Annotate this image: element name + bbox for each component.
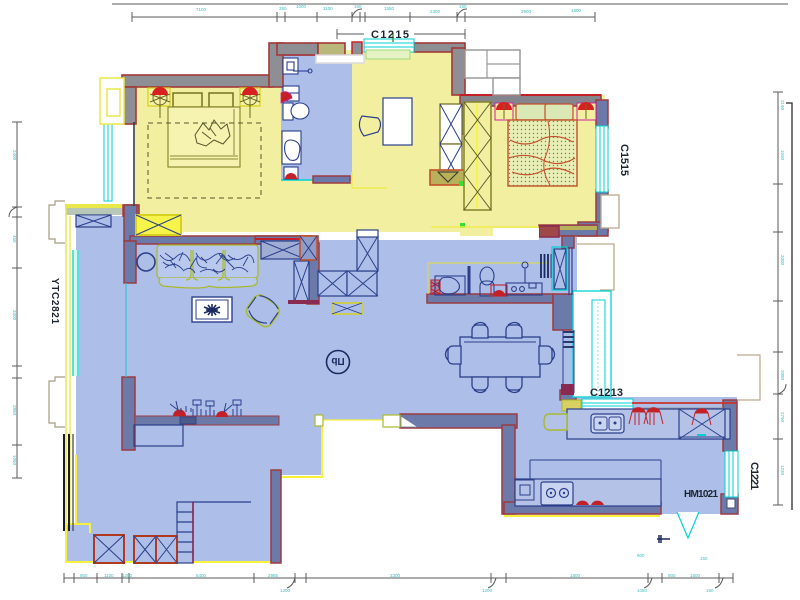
svg-text:350: 350: [279, 6, 287, 11]
svg-text:HM1021: HM1021: [684, 489, 718, 500]
svg-text:2400: 2400: [12, 150, 17, 161]
svg-text:C1215: C1215: [371, 29, 409, 41]
svg-text:1100: 1100: [323, 6, 333, 11]
svg-text:2190: 2190: [780, 100, 785, 111]
svg-text:1050: 1050: [637, 588, 648, 593]
svg-text:150: 150: [706, 588, 714, 593]
svg-text:5400: 5400: [196, 573, 207, 578]
svg-text:2900: 2900: [521, 9, 532, 14]
svg-text:C1221: C1221: [748, 462, 760, 490]
svg-text:YTC2821: YTC2821: [49, 278, 60, 324]
svg-text:1500: 1500: [690, 573, 701, 578]
svg-text:1550: 1550: [384, 6, 395, 11]
svg-text:900: 900: [668, 573, 676, 578]
svg-text:150: 150: [700, 556, 708, 561]
svg-text:2080: 2080: [780, 370, 785, 381]
svg-text:1050: 1050: [12, 455, 17, 466]
svg-text:2300: 2300: [430, 9, 441, 14]
svg-text:C1515: C1515: [618, 144, 630, 176]
svg-text:1800: 1800: [571, 8, 582, 13]
svg-text:1100: 1100: [104, 573, 114, 578]
svg-text:Пb: Пb: [331, 355, 344, 366]
svg-text:1590: 1590: [780, 150, 785, 161]
svg-text:1200: 1200: [280, 588, 291, 593]
svg-text:150: 150: [459, 4, 467, 9]
svg-text:1230: 1230: [780, 465, 785, 476]
svg-text:1000: 1000: [296, 4, 307, 9]
svg-text:160: 160: [354, 4, 362, 9]
svg-text:450: 450: [12, 235, 17, 243]
svg-text:3300: 3300: [780, 255, 785, 266]
svg-text:3300: 3300: [390, 573, 401, 578]
svg-text:C1213: C1213: [590, 387, 623, 399]
svg-text:1200: 1200: [122, 573, 133, 578]
svg-text:1200: 1200: [482, 588, 493, 593]
svg-text:2985: 2985: [268, 573, 279, 578]
svg-text:900: 900: [80, 573, 88, 578]
svg-text:3300: 3300: [12, 310, 17, 321]
svg-text:600: 600: [637, 553, 645, 558]
svg-text:2790: 2790: [780, 412, 785, 423]
svg-text:2850: 2850: [12, 405, 17, 416]
svg-text:7100: 7100: [196, 7, 207, 12]
svg-text:1800: 1800: [570, 573, 581, 578]
